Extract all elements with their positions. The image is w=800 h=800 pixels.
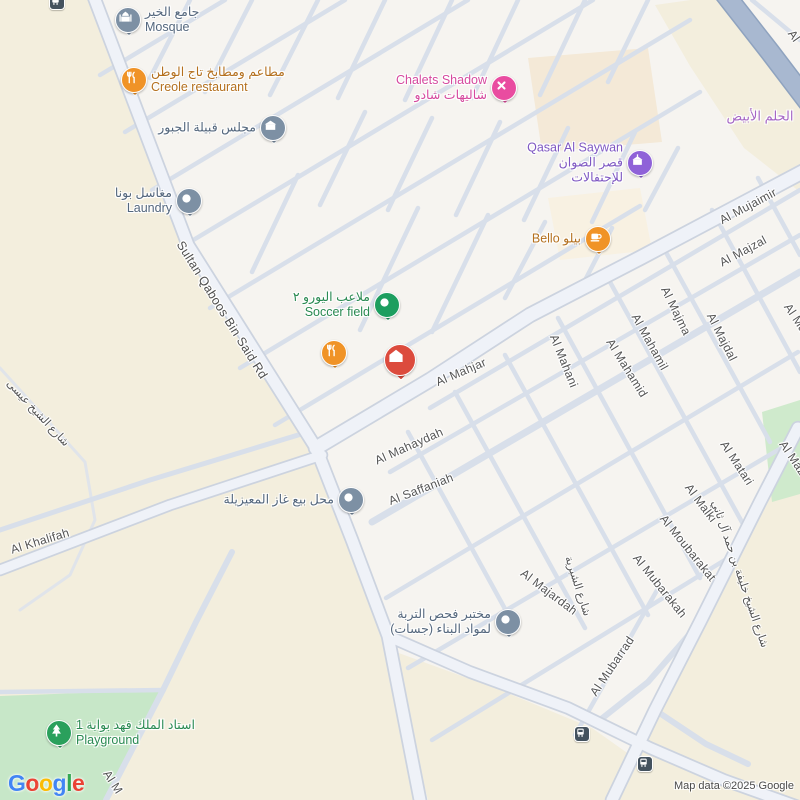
poi-label-line: مجلس قبيلة الجبور [158,121,256,136]
poi-label-line: مطاعم ومطابخ تاج الوطن [151,65,285,80]
poi-label-qasar-al-saywan[interactable]: Qasar Al Saywanقصر الصوانللإحتفالات [527,141,623,186]
poi-label-line: للإحتفالات [527,171,623,186]
poi-pin-chalets-shadow[interactable] [491,75,517,101]
poi-pin-soil-lab[interactable] [495,609,521,635]
poi-label-line: Mosque [145,20,199,35]
restaurant-icon [121,67,147,93]
poi-label-gas-shop[interactable]: محل بيع غاز المعيزيلة [224,493,334,508]
poi-pin-soccer-field[interactable] [374,292,400,318]
poi-label-line: مغاسل بونا [115,186,172,201]
road-na4 [338,0,385,98]
poi-label-majlis-al-jubour[interactable]: مجلس قبيلة الجبور [158,121,256,136]
poi-pin-laundry[interactable] [176,188,202,214]
tree-icon [46,720,72,746]
map-base-layer [0,0,800,800]
poi-label-line: لمواد البناء (جسات) [390,622,491,637]
bus-stop-icon[interactable] [49,0,65,10]
poi-label-playground[interactable]: استاد الملك فهد بوابة 1Playground [76,718,195,748]
poi-label-line: محل بيع غاز المعيزيلة [224,493,334,508]
poi-label-line: Laundry [115,201,172,216]
poi-label-line: ملاعب اليورو ٢ [293,290,370,305]
road-na11 [388,118,432,210]
google-logo-letter: o [25,770,39,796]
building-icon [260,115,286,141]
road-na12 [456,122,500,215]
poi-pin-home-marker[interactable] [384,344,416,376]
poi-label-creole-restaurant[interactable]: مطاعم ومطابخ تاج الوطنCreole restaurant [151,65,285,95]
dot-icon [495,609,521,635]
area-block-chalets [528,48,662,152]
poi-label-line: Bello بيلو [532,232,581,247]
map-canvas[interactable]: Google Map data ©2025 Google Sultan Qabo… [0,0,800,800]
poi-label-line: الحلم الأبيض [726,109,793,124]
poi-pin-playground[interactable] [46,720,72,746]
dot-icon [374,292,400,318]
dot-icon [176,188,202,214]
poi-label-chalets-shadow[interactable]: Chalets Shadowشاليهات شادو [396,73,487,103]
road-sa1 [455,392,585,628]
poi-label-soil-lab[interactable]: مختبر فحص التربةلمواد البناء (جسات) [390,607,491,637]
poi-label-line: مختبر فحص التربة [390,607,491,622]
poi-pin-qasar-al-saywan[interactable] [627,150,653,176]
google-logo-letter: e [72,770,84,796]
road-park-top-rd [0,690,163,692]
poi-label-line: Creole restaurant [151,80,285,95]
google-logo[interactable]: Google [8,770,84,797]
poi-label-line: Qasar Al Saywan [527,141,623,156]
poi-pin-mosque[interactable] [115,7,141,33]
poi-label-al-hilm-al-abyad[interactable]: الحلم الأبيض [726,109,793,124]
poi-label-line: قصر الصوان [527,156,623,171]
venue-icon [627,150,653,176]
poi-pin-gas-shop[interactable] [338,487,364,513]
mosque-icon [115,7,141,33]
map-attribution: Map data ©2025 Google [674,780,794,792]
poi-pin-restaurant-2[interactable] [321,340,347,366]
google-logo-letter: g [53,770,67,796]
poi-label-soccer-field[interactable]: ملاعب اليورو ٢Soccer field [293,290,370,320]
google-logo-letter: G [8,770,25,796]
poi-label-bello-cafe[interactable]: Bello بيلو [532,232,581,247]
poi-pin-bello-cafe[interactable] [585,226,611,252]
poi-label-line: Chalets Shadow [396,73,487,88]
bus-stop-icon[interactable] [574,726,590,742]
poi-label-line: استاد الملك فهد بوابة 1 [76,718,195,733]
poi-label-line: جامع الخير [145,5,199,20]
poi-label-laundry[interactable]: مغاسل بوناLaundry [115,186,172,216]
dot-icon [338,487,364,513]
bus-stop-icon[interactable] [637,756,653,772]
google-logo-letter: o [39,770,53,796]
restaurant-icon [321,340,347,366]
poi-label-line: Soccer field [293,305,370,320]
cafe-icon [585,226,611,252]
poi-pin-majlis-al-jubour[interactable] [260,115,286,141]
poi-pin-creole-restaurant[interactable] [121,67,147,93]
poi-label-mosque[interactable]: جامع الخيرMosque [145,5,199,35]
home-icon [384,344,416,376]
poi-label-line: Playground [76,733,195,748]
activity-icon [491,75,517,101]
poi-label-line: شاليهات شادو [396,88,487,103]
